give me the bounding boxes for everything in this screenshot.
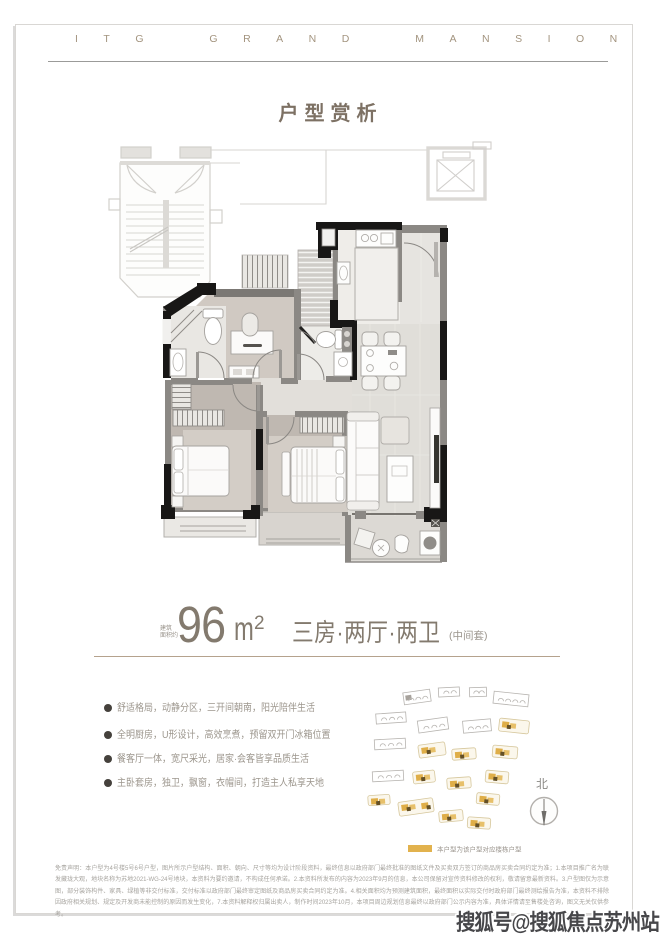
svg-text:本户型为该户型对应楼栋户型: 本户型为该户型对应楼栋户型 <box>437 845 522 854</box>
svg-text:北: 北 <box>536 777 548 791</box>
